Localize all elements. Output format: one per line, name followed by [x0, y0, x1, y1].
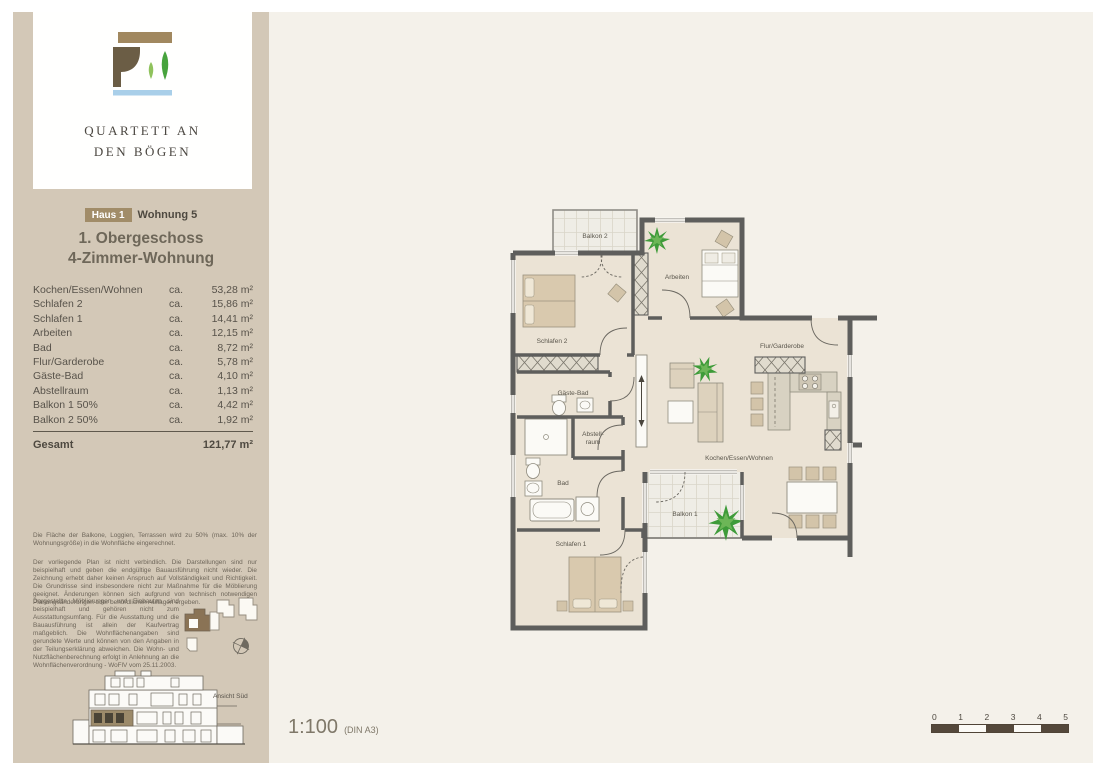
shower-cabin — [576, 497, 599, 521]
room-name: Schlafen 2 — [33, 297, 169, 311]
scalebar-tick: 2 — [985, 712, 990, 722]
room-area: 53,28 m² — [195, 283, 253, 297]
bed-guest — [702, 250, 738, 297]
scale-value: 1:100 — [288, 716, 338, 739]
floor-title: 1. Obergeschoss — [13, 230, 269, 248]
room-name: Balkon 1 50% — [33, 398, 169, 412]
brand-title-line2: DEN BÖGEN — [33, 141, 252, 162]
type-title: 4-Zimmer-Wohnung — [13, 250, 269, 268]
scalebar-tick: 0 — [932, 712, 937, 722]
brand-logo-icon — [113, 32, 173, 98]
building-footprint-icon-highlighted — [185, 609, 219, 631]
sidebar: QUARTETT AN DEN BÖGEN Haus 1 Wohnung 5 1… — [13, 12, 269, 763]
window — [847, 355, 853, 377]
scalebar-tick: 3 — [1011, 712, 1016, 722]
area-row: Abstellraumca.1,13 m² — [33, 384, 253, 398]
ca-label: ca. — [169, 297, 195, 311]
room-area: 1,13 m² — [195, 384, 253, 398]
ca-label: ca. — [169, 398, 195, 412]
total-label: Gesamt — [33, 439, 203, 451]
area-row: Arbeitenca.12,15 m² — [33, 326, 253, 340]
window — [655, 217, 685, 223]
room-area: 15,86 m² — [195, 297, 253, 311]
area-table: Kochen/Essen/Wohnenca.53,28 m²Schlafen 2… — [33, 283, 253, 451]
label-schlafen-2: Schlafen 2 — [537, 338, 568, 345]
highlighted-unit — [91, 710, 133, 726]
window — [642, 552, 648, 593]
building-footprint-icon — [187, 638, 197, 651]
area-row: Badca.8,72 m² — [33, 341, 253, 355]
label-kochen-essen-wohnen: Kochen/Essen/Wohnen — [705, 455, 773, 462]
label-abstellraum-2: raum — [586, 439, 601, 446]
dining-set — [787, 467, 837, 528]
compass-icon — [229, 634, 253, 658]
room-name: Abstellraum — [33, 384, 169, 398]
bar-stools — [751, 382, 763, 426]
scalebar-tick: 5 — [1063, 712, 1068, 722]
window — [510, 395, 516, 413]
label-abstellraum-1: Abstell- — [582, 431, 604, 438]
room-name: Schlafen 1 — [33, 312, 169, 326]
window — [847, 443, 853, 463]
building-footprint-icon — [217, 600, 234, 617]
brand-title: QUARTETT AN DEN BÖGEN — [33, 120, 252, 163]
scale-bar-segments — [931, 724, 1069, 733]
window — [555, 250, 578, 256]
ca-label: ca. — [169, 341, 195, 355]
ca-label: ca. — [169, 283, 195, 297]
room-area: 4,42 m² — [195, 398, 253, 412]
sofa — [698, 383, 723, 442]
window — [739, 485, 745, 520]
armchair — [670, 363, 694, 388]
kitchen-shaft — [825, 430, 841, 450]
area-row: Schlafen 2ca.15,86 m² — [33, 297, 253, 311]
kitchen-sink — [829, 401, 839, 418]
bed-double — [523, 275, 575, 327]
table-divider — [33, 431, 253, 432]
ca-label: ca. — [169, 384, 195, 398]
coffee-table — [668, 401, 693, 423]
page: { "brand": { "line1": "QUARTETT AN", "li… — [0, 0, 1106, 777]
scale-bar-segment — [932, 725, 959, 732]
label-schlafen-1: Schlafen 1 — [556, 541, 587, 548]
label-arbeiten: Arbeiten — [665, 274, 690, 281]
scale-format: (DIN A3) — [344, 725, 379, 735]
label-bad: Bad — [557, 480, 569, 487]
scale-bar-segment — [1014, 725, 1041, 732]
area-row: Gäste-Badca.4,10 m² — [33, 369, 253, 383]
room-name: Balkon 2 50% — [33, 413, 169, 427]
room-area: 1,92 m² — [195, 413, 253, 427]
installation-shaft — [634, 253, 648, 315]
room-name: Kochen/Essen/Wohnen — [33, 283, 169, 297]
scalebar-tick: 1 — [958, 712, 963, 722]
floor-plan: Balkon 2 Arbeiten Schlafen 2 Flur/Garder… — [505, 205, 880, 650]
room-area: 14,41 m² — [195, 312, 253, 326]
scale-bar-segment — [1041, 725, 1068, 732]
room-area: 4,10 m² — [195, 369, 253, 383]
unit-header: Haus 1 Wohnung 5 — [13, 208, 269, 222]
stove — [799, 374, 821, 390]
unit-label: Wohnung 5 — [138, 209, 198, 221]
room-name: Gäste-Bad — [33, 369, 169, 383]
window — [510, 260, 516, 313]
area-table-rows: Kochen/Essen/Wohnenca.53,28 m²Schlafen 2… — [33, 283, 253, 427]
scale-bar: 012345 — [931, 712, 1069, 733]
site-plan-icons — [181, 596, 259, 658]
dining-table — [787, 482, 837, 513]
ca-label: ca. — [169, 369, 195, 383]
sink — [577, 398, 593, 412]
scale-bar-segment — [986, 725, 1013, 732]
ca-label: ca. — [169, 413, 195, 427]
tv-sideboard — [636, 355, 647, 447]
room-area: 12,15 m² — [195, 326, 253, 340]
scale-bar-ticks: 012345 — [931, 712, 1069, 722]
area-row: Schlafen 1ca.14,41 m² — [33, 312, 253, 326]
label-flur-garderobe: Flur/Garderobe — [760, 343, 804, 350]
room-name: Arbeiten — [33, 326, 169, 340]
scale-note: 1:100 (DIN A3) — [288, 716, 379, 739]
area-row: Flur/Garderobeca.5,78 m² — [33, 355, 253, 369]
installation-shaft — [517, 355, 598, 372]
brand-title-line1: QUARTETT AN — [33, 120, 252, 141]
building-footprint-icon — [239, 598, 257, 620]
scale-bar-segment — [959, 725, 986, 732]
logo-box: QUARTETT AN DEN BÖGEN — [33, 12, 252, 189]
bathtub — [530, 499, 574, 521]
total-row: Gesamt 121,77 m² — [33, 439, 253, 451]
label-balkon-2: Balkon 2 — [582, 233, 608, 240]
wardrobe-builtin — [755, 357, 805, 373]
elevation-drawing — [71, 668, 247, 750]
balcony-2-floor — [553, 210, 637, 252]
label-gaeste-bad: Gäste-Bad — [557, 390, 588, 397]
area-row: Balkon 1 50%ca.4,42 m² — [33, 398, 253, 412]
ca-label: ca. — [169, 312, 195, 326]
total-value: 121,77 m² — [203, 439, 253, 451]
toilet — [552, 395, 566, 416]
legal-paragraph-1: Die Fläche der Balkone, Loggien, Terrass… — [33, 532, 257, 548]
toilet — [526, 458, 540, 479]
room-area: 5,78 m² — [195, 355, 253, 369]
sink — [525, 481, 542, 496]
ca-label: ca. — [169, 326, 195, 340]
room-name: Flur/Garderobe — [33, 355, 169, 369]
elevation-caption: Ansicht Süd — [213, 693, 248, 700]
area-row: Kochen/Essen/Wohnenca.53,28 m² — [33, 283, 253, 297]
label-balkon-1: Balkon 1 — [672, 511, 698, 518]
window — [642, 483, 648, 523]
window — [510, 455, 516, 497]
room-area: 8,72 m² — [195, 341, 253, 355]
ca-label: ca. — [169, 355, 195, 369]
area-row: Balkon 2 50%ca.1,92 m² — [33, 413, 253, 427]
room-name: Bad — [33, 341, 169, 355]
shower — [525, 419, 567, 455]
window — [650, 469, 737, 475]
scalebar-tick: 4 — [1037, 712, 1042, 722]
house-badge: Haus 1 — [85, 208, 132, 222]
legal-paragraph-3: Dargestellte Möblierungen und Einbauten … — [33, 598, 179, 670]
